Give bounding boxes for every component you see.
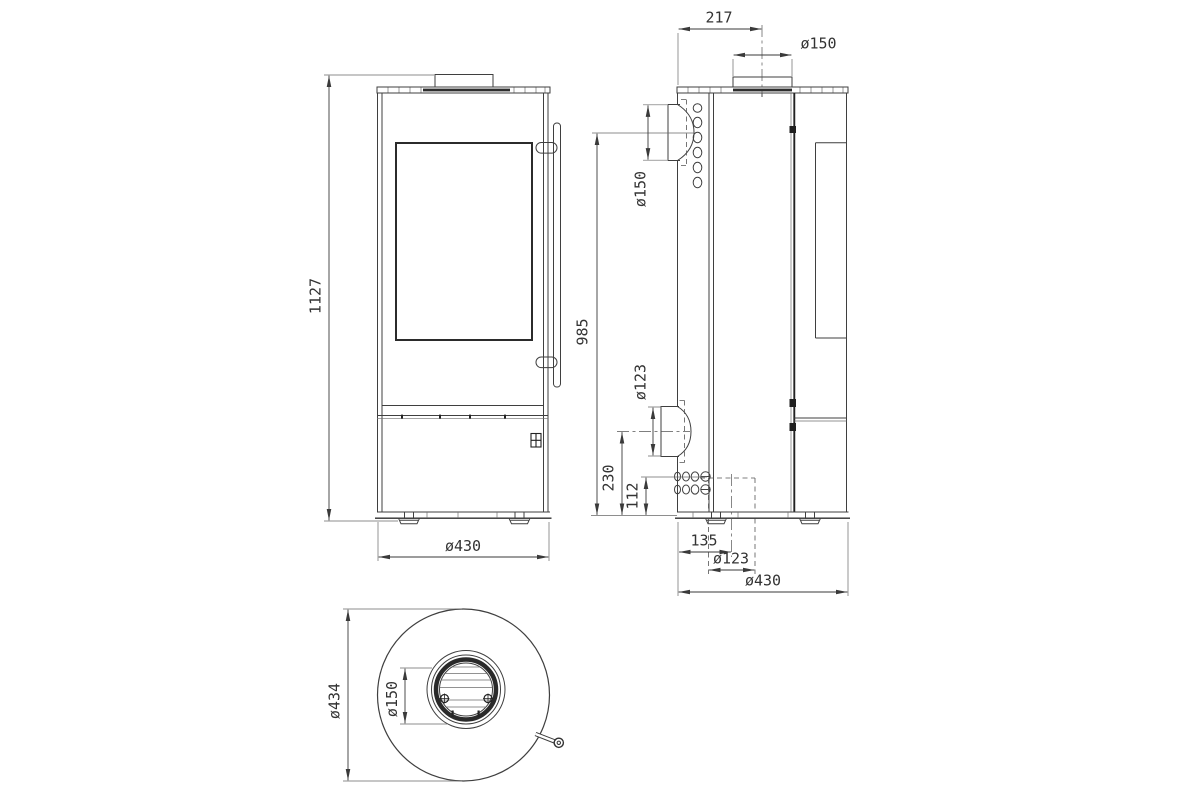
dim-side-flue-offset: 217 [678,9,762,98]
dim-front-base-width: ø430 [378,522,549,561]
label-rear-flue-height: 985 [574,318,592,345]
flue-pipe-wall [436,660,496,720]
label-bottom-inlet-offset: 135 [690,532,717,550]
hinge-bottom [790,423,797,431]
flue-flange-outer [427,651,505,729]
label-top-flue-diameter: ø150 [800,35,836,53]
inner-body-lines [709,93,714,512]
flue-collar-side [733,77,792,87]
label-flue-offset: 217 [705,9,732,27]
technical-drawing-page: 1127 ø430 [0,0,1200,800]
bottom-vent-holes [675,472,711,494]
handle-knob [554,738,563,747]
damper-tick-left [452,711,454,718]
side-view [661,77,850,574]
dim-side-top-flue-diameter: ø150 [733,35,837,77]
label-top-flue-diameter: ø150 [383,681,401,717]
door-handle-rod [554,123,561,387]
dim-front-overall-height: 1127 [307,75,435,521]
dim-side-rear-intake-diameter: ø123 [632,364,662,456]
flue-flange-inner [432,655,501,724]
handle-top-view [536,734,564,747]
body-curvature-arcs [678,105,695,457]
door-latch [531,434,541,448]
foot-front-left [399,512,420,524]
label-rear-intake-height: 230 [600,464,618,491]
label-front-width: ø430 [445,537,481,555]
label-bottom-inlet-diameter: ø123 [713,550,749,568]
glass-recess-profile [816,143,847,338]
flue-opening-slot [733,89,792,92]
label-front-height: 1127 [307,278,325,314]
stove-dimension-drawing: 1127 ø430 [0,0,1200,800]
flue-collar-front [435,75,493,88]
foot-front-right [509,512,530,524]
glass-window [396,143,532,340]
label-rear-intake-diameter: ø123 [632,364,650,400]
top-vent-slot [423,89,510,92]
dim-side-bottom-inlet-diameter: ø123 [709,550,754,571]
base-ticks-front [427,512,497,518]
dim-side-rear-intake-height: 230 [600,432,691,515]
flue-pipe-bore [440,663,493,716]
rear-vent-holes-column [693,104,702,188]
hinge-mid [790,399,797,407]
label-rear-flue-diameter: ø150 [632,171,650,207]
label-bottom-inlet-height: 112 [624,482,642,509]
body-circle [378,609,550,781]
damper-tick-right [478,711,480,718]
base-ticks-side [693,512,788,518]
hinge-top [790,126,797,133]
foot-side-front [800,512,821,524]
label-side-depth: ø430 [745,572,781,590]
dim-side-rear-flue-diameter: ø150 [632,105,668,207]
front-view [375,75,561,524]
dim-side-bottom-inlet-height: 112 [624,477,708,515]
body-sides-front [378,93,549,512]
label-top-body-diameter: ø434 [326,683,344,719]
